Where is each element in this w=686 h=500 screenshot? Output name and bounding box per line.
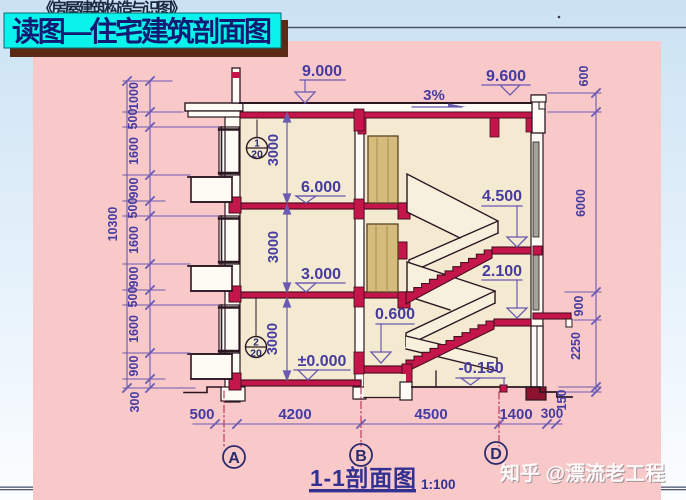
svg-text:900: 900 [572, 296, 586, 317]
svg-text:知乎 @漂流老工程: 知乎 @漂流老工程 [500, 461, 665, 485]
svg-text:900: 900 [127, 267, 141, 288]
svg-text:300: 300 [541, 406, 564, 421]
svg-text:4500: 4500 [414, 406, 447, 423]
svg-text:900: 900 [127, 178, 141, 199]
svg-text:2.100: 2.100 [482, 263, 522, 280]
svg-text:6.000: 6.000 [301, 179, 341, 196]
svg-text:500: 500 [126, 198, 140, 219]
svg-text:读图—住宅建筑剖面图: 读图—住宅建筑剖面图 [12, 15, 272, 47]
svg-text:±0.000: ±0.000 [298, 353, 347, 370]
svg-text:500: 500 [126, 287, 140, 308]
svg-text:2250: 2250 [569, 332, 583, 360]
svg-text:9.000: 9.000 [302, 63, 342, 80]
svg-text:A: A [228, 450, 240, 467]
svg-text:3000: 3000 [266, 134, 282, 166]
svg-text:3000: 3000 [265, 323, 281, 355]
svg-text:1000: 1000 [127, 82, 141, 110]
svg-text:20: 20 [251, 149, 263, 161]
svg-text:6000: 6000 [574, 189, 588, 217]
svg-text:1:100: 1:100 [421, 477, 456, 492]
svg-text:500: 500 [189, 406, 214, 423]
svg-text:4.500: 4.500 [482, 188, 522, 205]
svg-text:900: 900 [127, 356, 141, 377]
svg-text:600: 600 [577, 66, 591, 87]
svg-text:20: 20 [250, 348, 262, 360]
svg-text:0.600: 0.600 [375, 306, 415, 323]
svg-text:1600: 1600 [127, 315, 141, 343]
svg-text:B: B [355, 448, 367, 465]
svg-text:9.600: 9.600 [486, 68, 526, 85]
svg-text:3%: 3% [423, 87, 445, 104]
svg-text:1600: 1600 [127, 226, 141, 254]
svg-text:10300: 10300 [106, 207, 120, 242]
svg-text:4200: 4200 [278, 406, 311, 423]
svg-text:-0.150: -0.150 [458, 360, 503, 377]
svg-text:1400: 1400 [499, 406, 532, 423]
svg-text:3000: 3000 [266, 231, 282, 263]
svg-text:300: 300 [128, 392, 142, 413]
svg-text:1-1剖面图: 1-1剖面图 [310, 465, 416, 491]
svg-text:3.000: 3.000 [301, 266, 341, 283]
svg-text:D: D [490, 446, 502, 463]
svg-text:1600: 1600 [127, 137, 141, 165]
svg-text:500: 500 [126, 109, 140, 130]
